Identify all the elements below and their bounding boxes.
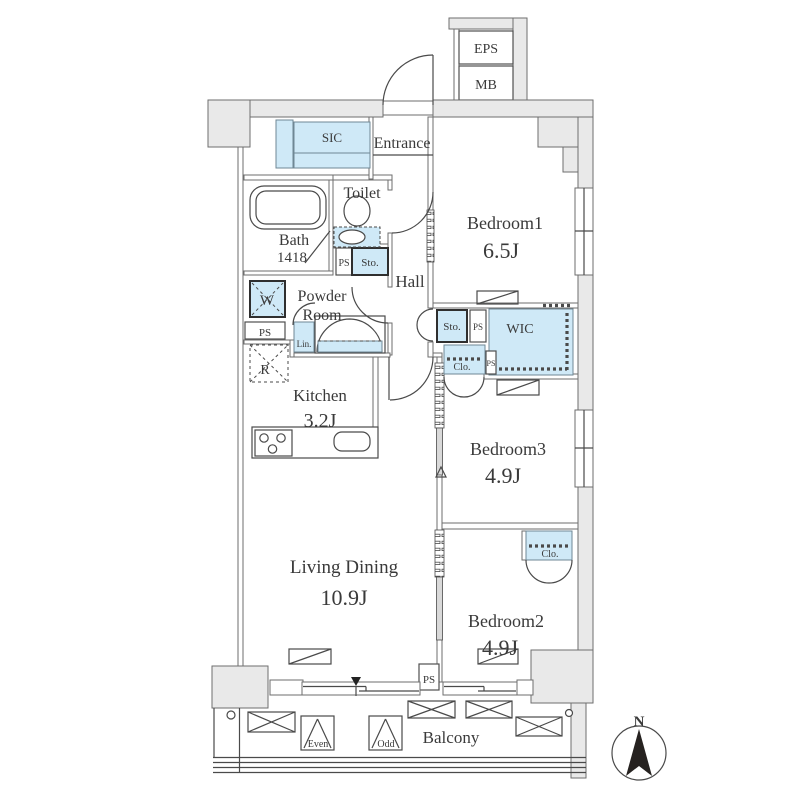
sic-box — [294, 153, 370, 168]
left-wall — [238, 147, 243, 666]
eps-label: EPS — [474, 42, 498, 57]
ps-label: PS — [487, 359, 496, 368]
door-sill — [383, 101, 433, 115]
clo-label: Clo. — [542, 549, 559, 560]
right-wall — [578, 275, 593, 410]
entrance-label: Entrance — [374, 135, 431, 152]
bedroom2-label: Bedroom2 — [468, 611, 544, 631]
bath-label: Bath — [279, 232, 309, 249]
bedroom2-size: 4.9J — [482, 635, 519, 660]
sliding-door-bedroom2 — [435, 530, 444, 577]
linen-label: Lin. — [297, 339, 312, 349]
wic-label: WIC — [506, 322, 533, 337]
top-wall — [433, 100, 593, 117]
kitchen-label: Kitchen — [293, 386, 347, 405]
floor-plan-page: N EPS MB Entrance SIC Toilet Bath 1418 P… — [0, 0, 800, 800]
living-dining-label: Living Dining — [290, 557, 399, 578]
clo-double-door — [526, 560, 572, 583]
sink-icon — [339, 230, 365, 244]
ps-label: PS — [473, 322, 483, 332]
balcony-wall — [571, 703, 586, 778]
hall-label: Hall — [395, 272, 425, 291]
mb-label: MB — [475, 78, 497, 93]
bath-size: 1418 — [277, 250, 307, 266]
wic-double-door — [417, 309, 433, 341]
corner-pillar — [208, 100, 250, 147]
wic-box — [489, 309, 573, 375]
shaft-wall — [454, 29, 459, 100]
drain-icon — [566, 710, 573, 717]
living-dining-size: 10.9J — [320, 585, 368, 610]
toilet-label: Toilet — [343, 185, 381, 202]
washer-label: W — [260, 293, 275, 309]
bedroom3-label: Bedroom3 — [470, 439, 546, 459]
kitchen-size: 3.2J — [304, 410, 337, 432]
window-bedroom2 — [443, 682, 517, 695]
corner-pillar — [212, 666, 268, 708]
sto-label: Sto. — [443, 321, 461, 333]
sto-label: Sto. — [361, 257, 379, 269]
shaft-wall — [513, 18, 527, 103]
balcony — [213, 701, 586, 778]
ps-label: PS — [338, 258, 349, 269]
clo-label: Clo. — [454, 362, 471, 373]
bedroom1-size: 6.5J — [483, 238, 520, 263]
door-arc — [383, 55, 433, 105]
powder-room-label-2: Room — [302, 307, 342, 324]
sliding-door-bedroom3 — [435, 363, 444, 428]
even-label: Even — [308, 739, 329, 750]
sliding-door-bedroom1 — [427, 210, 434, 262]
entrance-door — [383, 55, 433, 115]
sic-label: SIC — [322, 130, 342, 145]
sic-box — [276, 120, 293, 168]
right-wall — [578, 487, 593, 650]
corner-pillar — [531, 650, 593, 703]
bedroom3-size: 4.9J — [485, 463, 522, 488]
ps-label: PS — [259, 327, 271, 339]
balcony-label: Balcony — [423, 728, 480, 747]
right-wall — [578, 117, 593, 188]
living-door-arc — [389, 357, 433, 400]
clo-double-door — [444, 377, 484, 397]
compass-north-label: N — [634, 714, 645, 730]
ac-unit-box — [248, 701, 562, 736]
odd-label: Odd — [377, 739, 394, 750]
floor-plan: N EPS MB Entrance SIC Toilet Bath 1418 P… — [0, 0, 800, 800]
ps-label: PS — [423, 674, 435, 686]
powder-room-label-1: Powder — [298, 288, 348, 305]
drain-icon — [227, 711, 235, 719]
bottom-walls — [270, 664, 533, 696]
compass: N — [612, 714, 666, 780]
window-living — [302, 682, 420, 695]
bedroom1-label: Bedroom1 — [467, 213, 543, 233]
fridge-label: R — [260, 363, 270, 378]
